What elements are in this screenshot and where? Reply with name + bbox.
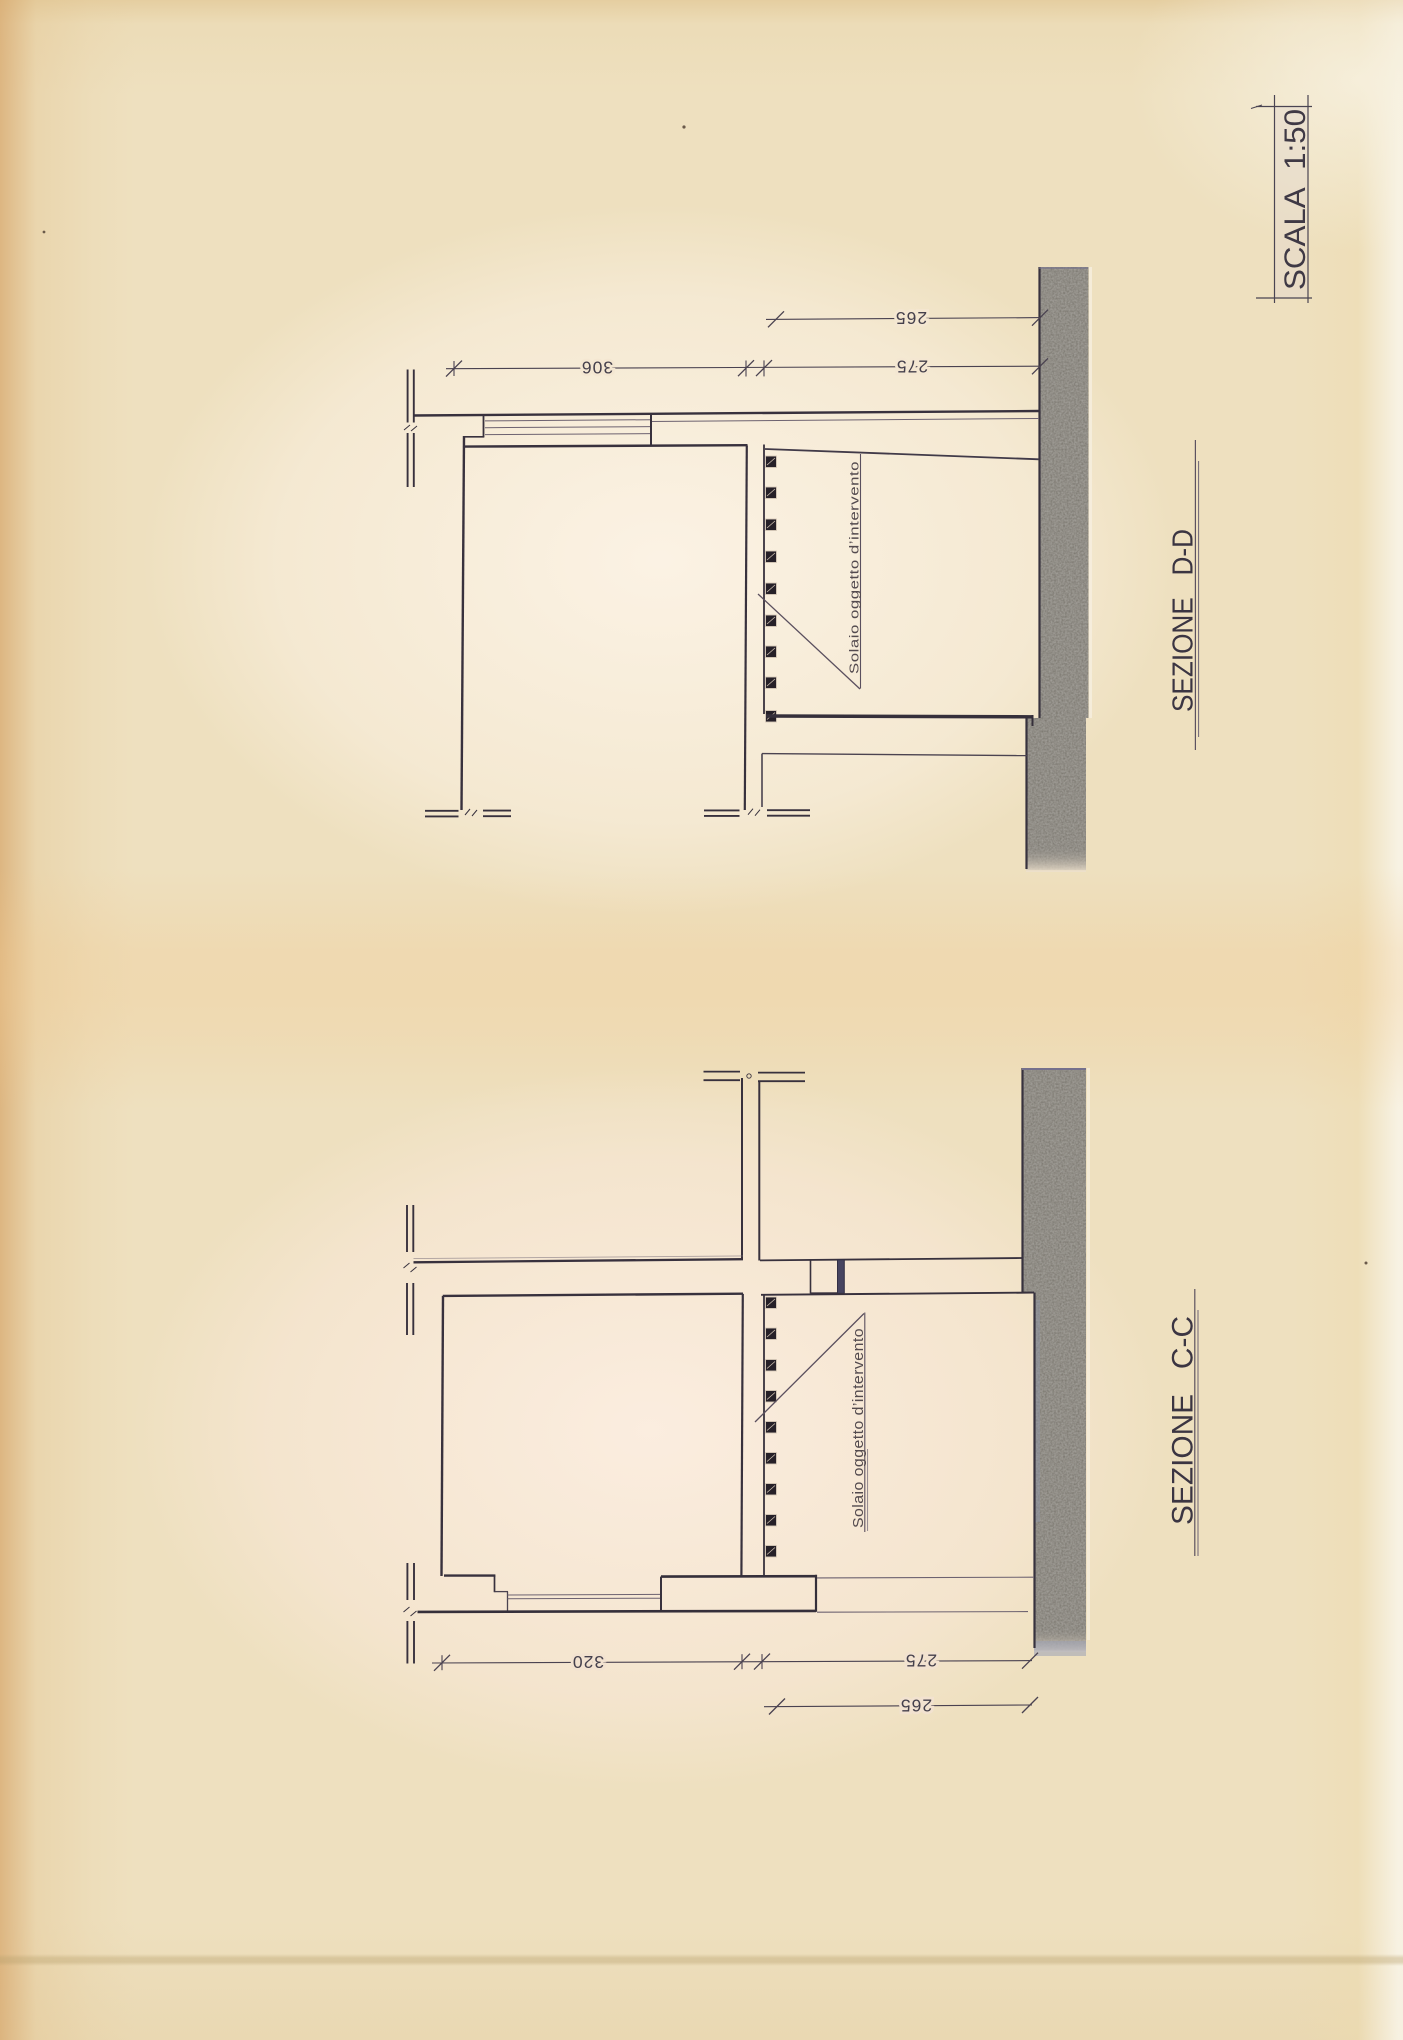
svg-text:275: 275 xyxy=(905,1651,937,1671)
svg-text:Solaio oggetto d’intervento: Solaio oggetto d’intervento xyxy=(851,1328,867,1528)
svg-text:265: 265 xyxy=(900,1695,932,1715)
svg-text:265: 265 xyxy=(895,308,927,328)
svg-text:SCALA 1:50: SCALA 1:50 xyxy=(1279,109,1312,290)
svg-text:306: 306 xyxy=(581,357,613,377)
svg-text:SEZIONE D-D: SEZIONE D-D xyxy=(1168,529,1200,712)
svg-text:Solaio oggetto d’intervento: Solaio oggetto d’intervento xyxy=(846,461,861,674)
svg-text:275: 275 xyxy=(896,356,928,376)
svg-text:320: 320 xyxy=(572,1652,604,1672)
